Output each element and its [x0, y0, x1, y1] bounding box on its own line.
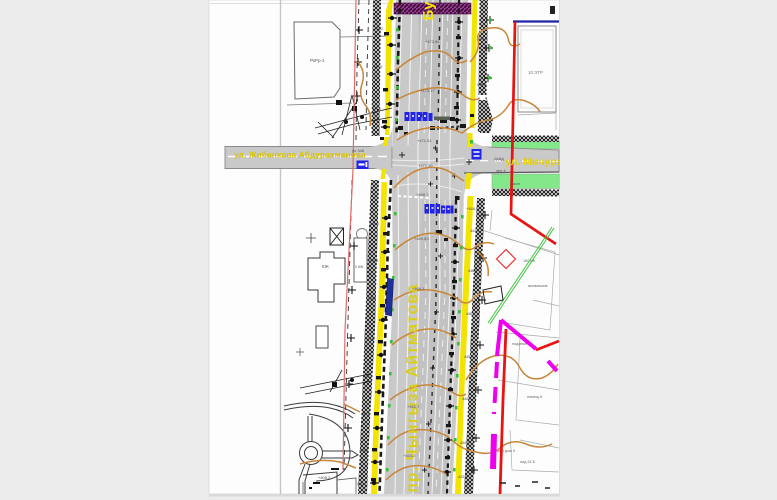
- svg-text:443,6: 443,6: [361, 412, 370, 416]
- svg-text:447,3: 447,3: [470, 229, 479, 233]
- svg-text:442,6: 442,6: [357, 482, 366, 486]
- svg-text:РкРр-1: РкРр-1: [310, 58, 325, 63]
- svg-text:подземн: подземн: [512, 342, 527, 346]
- svg-text:444,3: 444,3: [460, 441, 469, 445]
- svg-text:449,1: 449,1: [478, 37, 487, 41]
- svg-text:444,6: 444,6: [365, 337, 374, 341]
- svg-text:446,3: 446,3: [370, 222, 379, 226]
- svg-text:газон: газон: [510, 181, 520, 186]
- svg-text:КЖ: КЖ: [322, 264, 330, 269]
- svg-text:ул. Жибенкова Абдурахманова: ул. Жибенкова Абдурахманова: [234, 150, 366, 160]
- svg-text:под 24 Б: под 24 Б: [520, 460, 536, 464]
- svg-text:+471,36: +471,36: [418, 163, 433, 168]
- svg-text:зел 4: зел 4: [496, 168, 506, 173]
- svg-text:443,0: 443,0: [359, 449, 368, 453]
- svg-text:+469,83: +469,83: [414, 236, 429, 241]
- svg-text:447,1: 447,1: [372, 107, 381, 111]
- svg-text:448,6: 448,6: [477, 83, 486, 87]
- svg-text:помещ 6: помещ 6: [527, 395, 542, 399]
- svg-text:445,8: 445,8: [369, 259, 378, 263]
- svg-text:ул 348: ул 348: [352, 148, 365, 153]
- svg-text:+473,81: +473,81: [425, 39, 440, 44]
- svg-text:444,9: 444,9: [462, 397, 471, 401]
- svg-text:+468,9: +468,9: [466, 206, 479, 211]
- svg-text:+465,7: +465,7: [407, 404, 420, 409]
- svg-text:445,2: 445,2: [367, 297, 376, 301]
- svg-text:ДхДд: ДхДд: [494, 156, 504, 161]
- svg-text:445,5: 445,5: [464, 355, 473, 359]
- svg-text:Бу: Бу: [420, 1, 437, 21]
- svg-text:10 ЭТР: 10 ЭТР: [528, 70, 543, 75]
- svg-text:447,9: 447,9: [373, 65, 382, 69]
- svg-text:+471,01: +471,01: [417, 138, 432, 143]
- svg-text:448,2: 448,2: [374, 27, 383, 31]
- svg-text:444,1: 444,1: [363, 375, 372, 379]
- svg-text:443,8: 443,8: [458, 475, 467, 479]
- svg-text:+468,?: +468,?: [416, 192, 429, 197]
- svg-text:446,1: 446,1: [466, 312, 475, 316]
- svg-text:+405,2: +405,2: [318, 475, 331, 480]
- svg-text:жил дом 9: жил дом 9: [497, 449, 515, 453]
- svg-text:пр. Чынгыза Айтматова: пр. Чынгыза Айтматова: [404, 283, 421, 492]
- svg-text:+469,1: +469,1: [412, 286, 425, 291]
- svg-text:2 КЖ: 2 КЖ: [355, 265, 364, 269]
- svg-text:+464,2: +464,2: [403, 453, 416, 458]
- svg-text:446,8: 446,8: [468, 269, 477, 273]
- svg-text:+473,17: +473,17: [420, 88, 435, 93]
- svg-text:жилмассив: жилмассив: [528, 284, 548, 288]
